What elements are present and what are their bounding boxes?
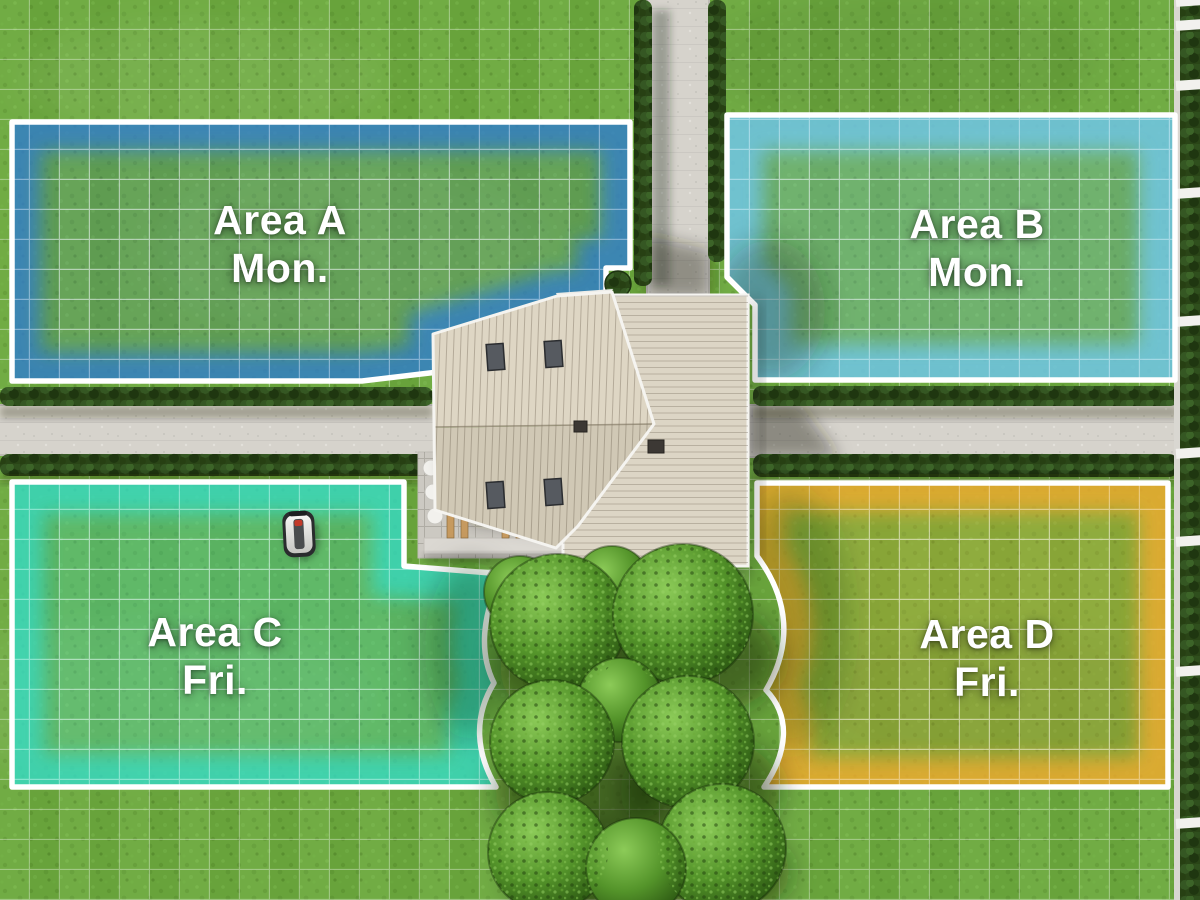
hedge-left-path-bottom	[0, 454, 428, 476]
house	[418, 289, 761, 580]
path-vertical	[634, 0, 726, 298]
hedge-fence-right	[1174, 0, 1200, 900]
hedge-right-path-bottom	[753, 454, 1178, 477]
garden-map-render	[0, 0, 1200, 900]
hedge-vertical-left	[634, 0, 652, 286]
hedge-left-path-top	[0, 387, 433, 406]
chimney	[574, 421, 587, 432]
mower-stop-button	[294, 520, 302, 526]
zone-b-region[interactable]	[715, 115, 1175, 380]
hedge-right-path-top	[753, 386, 1178, 406]
chimney	[648, 440, 664, 453]
path-right	[748, 386, 1181, 483]
zone-d-region[interactable]	[730, 483, 1168, 787]
hedge-vertical-right	[708, 0, 726, 262]
garden-map: Area A Mon. Area B Mon. Area C Fri. Area…	[0, 0, 1200, 900]
path-left	[0, 387, 436, 483]
